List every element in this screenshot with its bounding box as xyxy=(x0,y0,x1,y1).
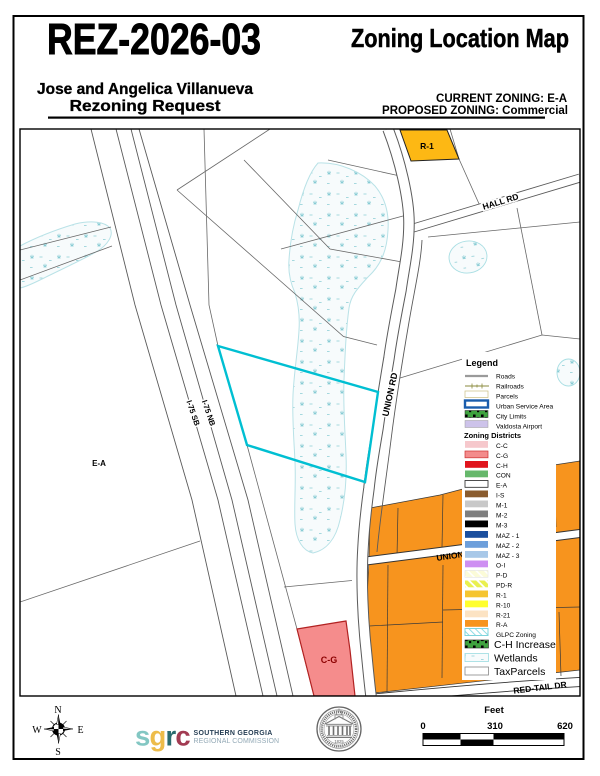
svg-text:M-1: M-1 xyxy=(496,503,508,510)
svg-text:GLPC Zoning: GLPC Zoning xyxy=(496,632,536,639)
svg-text:1825: 1825 xyxy=(334,739,344,744)
svg-text:Valdosta Airport: Valdosta Airport xyxy=(496,424,542,431)
svg-text:P-D: P-D xyxy=(496,573,508,580)
svg-text:Legend: Legend xyxy=(466,358,498,368)
svg-text:0: 0 xyxy=(420,721,425,732)
svg-text:Urban Service Area: Urban Service Area xyxy=(496,404,554,411)
svg-text:MAZ - 1: MAZ - 1 xyxy=(496,533,520,540)
svg-text:Jose and Angelica Villanueva: Jose and Angelica Villanueva xyxy=(37,81,253,98)
svg-text:E: E xyxy=(77,725,83,736)
svg-text:Parcels: Parcels xyxy=(496,394,519,401)
svg-text:MAZ - 3: MAZ - 3 xyxy=(496,553,520,560)
svg-text:PD-R: PD-R xyxy=(496,583,512,590)
svg-text:310: 310 xyxy=(487,721,503,732)
svg-text:R-A: R-A xyxy=(496,622,508,629)
svg-text:C-G: C-G xyxy=(321,655,338,665)
svg-text:O-I: O-I xyxy=(496,563,505,570)
svg-text:CON: CON xyxy=(496,473,511,480)
svg-text:Zoning Districts: Zoning Districts xyxy=(464,431,521,440)
svg-text:I-S: I-S xyxy=(496,493,505,500)
svg-text:C-G: C-G xyxy=(496,453,508,460)
svg-text:S: S xyxy=(55,747,61,758)
svg-text:R-21: R-21 xyxy=(496,613,511,620)
svg-text:CURRENT ZONING: E-A: CURRENT ZONING: E-A xyxy=(436,93,567,105)
svg-text:Wetlands: Wetlands xyxy=(494,653,538,665)
svg-text:Railroads: Railroads xyxy=(496,384,525,391)
svg-text:R-10: R-10 xyxy=(496,603,511,610)
svg-text:City Limits: City Limits xyxy=(496,414,527,421)
svg-text:Roads: Roads xyxy=(496,374,516,381)
svg-text:E-A: E-A xyxy=(92,459,106,468)
svg-text:M-3: M-3 xyxy=(496,523,508,530)
svg-text:620: 620 xyxy=(557,721,573,732)
svg-text:E-A: E-A xyxy=(496,483,508,490)
svg-text:M-2: M-2 xyxy=(496,513,508,520)
svg-text:MAZ - 2: MAZ - 2 xyxy=(496,543,520,550)
svg-text:R-1: R-1 xyxy=(420,141,434,151)
svg-text:sgrc: sgrc xyxy=(135,721,190,752)
svg-text:REGIONAL COMMISSION: REGIONAL COMMISSION xyxy=(194,738,280,745)
svg-text:Rezoning Request: Rezoning Request xyxy=(70,98,221,115)
svg-text:REZ-2026-03: REZ-2026-03 xyxy=(47,15,261,64)
svg-text:PROPOSED ZONING: Commercial: PROPOSED ZONING: Commercial xyxy=(382,105,568,117)
svg-text:C-H Increase: C-H Increase xyxy=(494,639,556,651)
svg-text:Feet: Feet xyxy=(484,705,504,716)
svg-text:Zoning Location Map: Zoning Location Map xyxy=(351,23,569,53)
svg-text:TaxParcels: TaxParcels xyxy=(494,666,545,678)
svg-text:W: W xyxy=(32,725,42,736)
svg-text:R-1: R-1 xyxy=(496,593,507,600)
svg-text:SOUTHERN GEORGIA: SOUTHERN GEORGIA xyxy=(194,730,273,737)
svg-text:C-H: C-H xyxy=(496,463,508,470)
svg-text:C-C: C-C xyxy=(496,443,508,450)
svg-text:N: N xyxy=(54,705,61,716)
